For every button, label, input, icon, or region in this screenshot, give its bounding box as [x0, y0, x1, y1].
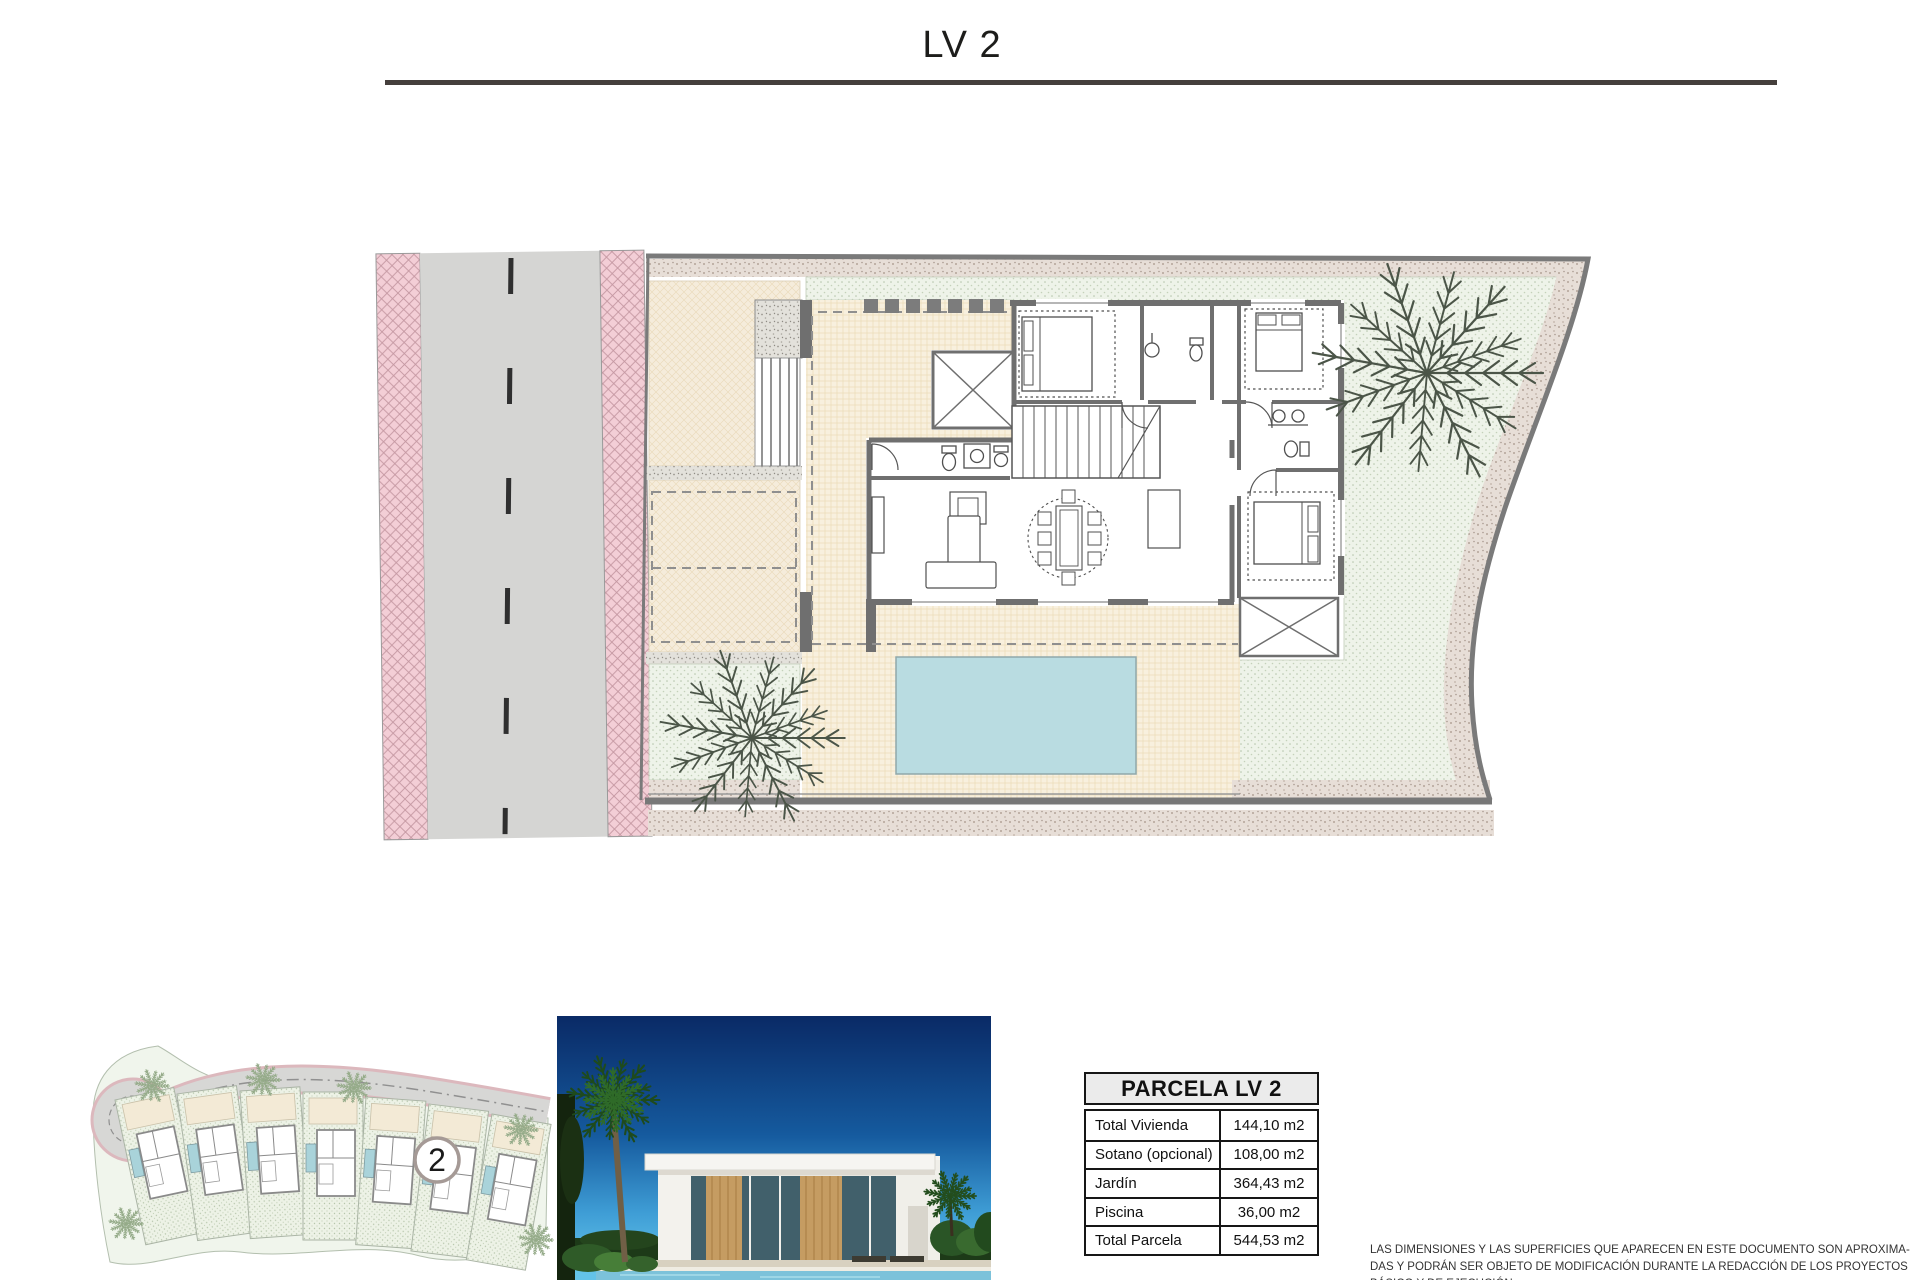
site-plan [376, 250, 1588, 840]
row-label: Sotano (opcional) [1086, 1142, 1219, 1169]
disclaimer: LAS DIMENSIONES Y LAS SUPERFICIES QUE AP… [1370, 1242, 1850, 1280]
disclaimer-line: LAS DIMENSIONES Y LAS SUPERFICIES QUE AP… [1370, 1242, 1850, 1259]
pergola-slats [755, 358, 800, 466]
photo-villa [645, 1154, 940, 1262]
stairs [1012, 406, 1160, 478]
boundary-band-bottom [648, 810, 1494, 836]
entry-gravel-pad [755, 300, 802, 358]
plot [303, 1092, 363, 1240]
road-asphalt [420, 251, 608, 839]
disclaimer-line: BÁSICO Y DE EJECUCIÓN [1370, 1276, 1850, 1280]
villa-photo [557, 1016, 1006, 1280]
house-floorplan [866, 299, 1345, 656]
photo-lounger [890, 1256, 924, 1262]
parcel-table: PARCELA LV 2 Total Vivienda 144,10 m2 So… [1084, 1072, 1319, 1256]
row-label: Piscina [1086, 1199, 1219, 1226]
pool [896, 657, 1136, 774]
minimap: 2 [92, 1046, 553, 1270]
row-label: Total Vivienda [1086, 1111, 1219, 1140]
boundary-band-top [646, 259, 1566, 277]
wall-stub [800, 592, 812, 652]
table-row: Piscina 36,00 m2 [1086, 1197, 1317, 1226]
row-value: 36,00 m2 [1219, 1199, 1317, 1226]
plot-badge: 2 [415, 1138, 459, 1182]
parcel-table-rows: Total Vivienda 144,10 m2 Sotano (opciona… [1084, 1109, 1319, 1256]
road [376, 250, 652, 840]
band-se [1232, 780, 1490, 798]
row-label: Total Parcela [1086, 1227, 1219, 1254]
gravel-band-1 [646, 466, 802, 480]
table-row: Jardín 364,43 m2 [1086, 1168, 1317, 1197]
row-value: 544,53 m2 [1219, 1227, 1317, 1254]
sidewalk-left [376, 253, 428, 840]
pergola-beams [864, 299, 1004, 313]
row-value: 364,43 m2 [1219, 1170, 1317, 1197]
plot-badge-number: 2 [428, 1142, 446, 1178]
photo-lounger [852, 1256, 886, 1262]
site-plan-canvas: 2 [0, 0, 1920, 1280]
table-row: Total Parcela 544,53 m2 [1086, 1225, 1317, 1254]
row-label: Jardín [1086, 1170, 1219, 1197]
row-value: 108,00 m2 [1219, 1142, 1317, 1169]
disclaimer-line: DAS Y PODRÁN SER OBJETO DE MODIFICACIÓN … [1370, 1259, 1850, 1276]
row-value: 144,10 m2 [1219, 1111, 1317, 1140]
plot [240, 1087, 310, 1239]
table-row: Sotano (opcional) 108,00 m2 [1086, 1140, 1317, 1169]
table-row: Total Vivienda 144,10 m2 [1086, 1111, 1317, 1140]
brochure-page: LV 2 [0, 0, 1920, 1280]
garden-square-sw [649, 664, 800, 780]
parcel-table-header: PARCELA LV 2 [1084, 1072, 1319, 1105]
wall-stub [800, 300, 812, 358]
parking-court [649, 480, 800, 652]
